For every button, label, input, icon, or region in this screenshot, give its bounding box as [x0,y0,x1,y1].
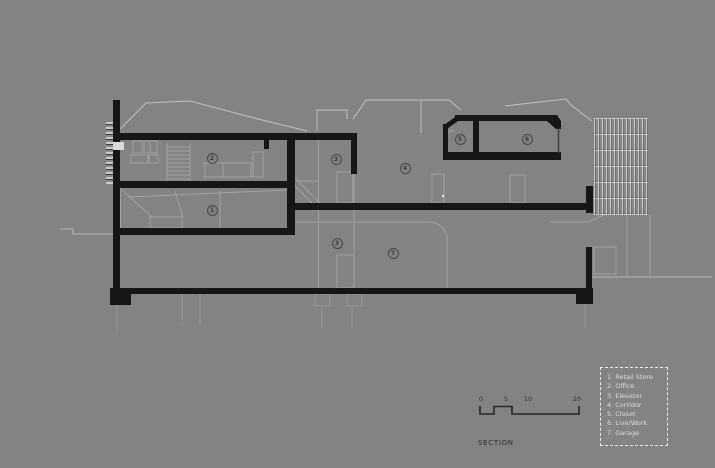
legend-item: 7. Garage [607,429,667,438]
roof-post [351,140,357,174]
rooftop-divider-wall [473,118,479,154]
legend-item: 3. Elevator [607,392,667,401]
rooftop-roof-slab [455,115,550,121]
left-wall [113,100,120,290]
ground-slab [110,288,578,294]
sheet-title: SECTION [478,439,514,447]
grade-lines [60,229,712,277]
scale-label: 5 [504,395,508,403]
legend-items: 1. Retail Store2. Office3. Elevator4. Co… [607,373,667,438]
legend-item: 4. Corridor [607,401,667,410]
left-wall-sill [113,142,124,150]
room-marker-1: 1 [207,205,218,216]
legend-item: 6. Live/Work [607,419,667,428]
room-marker-3: 3 [332,238,343,249]
legend-box: 1. Retail Store2. Office3. Elevator4. Co… [600,367,668,446]
rooftop-chamfer [444,118,458,128]
room-marker-7: 7 [388,248,399,259]
right-lower-wall [586,247,592,290]
retail-floor-slab [113,228,295,235]
room-marker-5: 5 [455,134,466,145]
rooftop-corner [546,115,561,129]
legend-item: 2. Office [607,382,667,391]
door-handle-dot [442,195,444,197]
rooftop-floor-slab [443,152,561,160]
scale-label: 20 [573,395,581,403]
roof-slab [113,133,357,140]
office-floor-slab [113,181,295,188]
hatched-screen-texture [594,118,648,215]
room-marker-6: 6 [522,134,533,145]
architectural-section-sheet: 12334567 1. Retail Store2. Office3. Elev… [0,0,715,468]
office-wall-stub [264,140,269,149]
room-marker-2: 2 [207,153,218,164]
scale-bar [480,406,579,414]
room-marker-4: 4 [400,163,411,174]
legend-item: 1. Retail Store [607,373,667,382]
corridor-floor-slab [287,203,591,210]
left-wall-hatch [106,122,113,184]
right-upper-wall [586,186,593,213]
right-footing [576,288,593,304]
scale-label: 10 [524,395,532,403]
legend-item: 5. Closet [607,410,667,419]
foundation-lines [117,294,585,330]
scale-label: 0 [479,395,483,403]
room-marker-3: 3 [331,154,342,165]
